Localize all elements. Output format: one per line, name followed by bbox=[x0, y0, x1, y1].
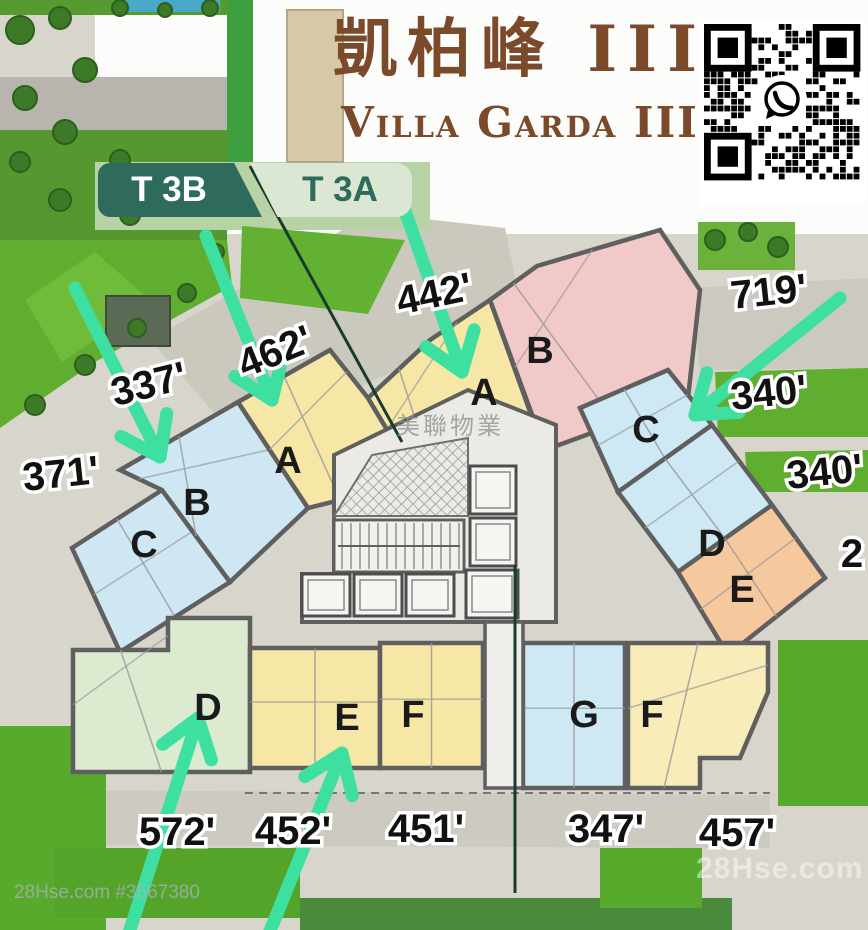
qr-module bbox=[833, 106, 839, 112]
qr-module bbox=[786, 146, 792, 152]
qr-module bbox=[826, 119, 832, 125]
qr-module bbox=[806, 106, 812, 112]
qr-module bbox=[752, 65, 758, 71]
qr-module bbox=[826, 99, 832, 105]
whatsapp-qr-code bbox=[700, 20, 866, 206]
watermark-agency: 美聯物業 bbox=[396, 406, 504, 441]
qr-module bbox=[704, 72, 710, 78]
tree bbox=[49, 189, 71, 211]
tree bbox=[49, 7, 71, 29]
qr-module bbox=[779, 133, 785, 139]
unit-label-c: C bbox=[130, 524, 157, 566]
qr-module bbox=[792, 160, 798, 166]
qr-module bbox=[854, 174, 860, 180]
qr-module bbox=[724, 106, 730, 112]
qr-module bbox=[779, 153, 785, 159]
qr-module bbox=[724, 126, 730, 132]
unit-label-e: E bbox=[729, 569, 754, 611]
qr-module bbox=[813, 106, 819, 112]
qr-module bbox=[772, 146, 778, 152]
qr-module bbox=[738, 78, 744, 84]
qr-module bbox=[738, 85, 744, 91]
qr-module bbox=[854, 140, 860, 146]
qr-module bbox=[765, 58, 771, 64]
unit-label-d: D bbox=[698, 523, 725, 565]
qr-module bbox=[799, 153, 805, 159]
qr-module bbox=[786, 133, 792, 139]
qr-module bbox=[745, 92, 751, 98]
floorplan-image: CBAABCDEDEFGF442'462'337'371'719'340'340… bbox=[0, 0, 868, 930]
qr-module bbox=[840, 78, 846, 84]
qr-module bbox=[820, 85, 826, 91]
qr-module bbox=[847, 174, 853, 180]
qr-module bbox=[847, 126, 853, 132]
qr-module bbox=[758, 58, 764, 64]
qr-module bbox=[792, 31, 798, 37]
qr-module bbox=[731, 72, 737, 78]
qr-module bbox=[786, 167, 792, 173]
qr-module bbox=[738, 99, 744, 105]
qr-module bbox=[813, 119, 819, 125]
tree bbox=[75, 355, 95, 375]
qr-module bbox=[826, 167, 832, 173]
qr-module bbox=[847, 153, 853, 159]
core-corridor bbox=[485, 622, 523, 788]
unit-label-c: C bbox=[632, 409, 659, 451]
qr-module bbox=[792, 65, 798, 71]
watermark-28hse: 28Hse.com bbox=[696, 852, 863, 886]
qr-module bbox=[854, 133, 860, 139]
qr-module bbox=[820, 72, 826, 78]
qr-module bbox=[718, 146, 738, 166]
qr-module bbox=[779, 58, 785, 64]
tower-badge-t3b: T 3B bbox=[98, 163, 262, 217]
unit-label-b: B bbox=[526, 330, 553, 372]
tree bbox=[202, 0, 218, 16]
qr-module bbox=[820, 133, 826, 139]
qr-module bbox=[758, 174, 764, 180]
qr-module bbox=[758, 140, 764, 146]
area-label-371: 371' bbox=[20, 448, 100, 500]
tree bbox=[128, 319, 146, 337]
qr-module bbox=[813, 160, 819, 166]
unit-label-f: F bbox=[640, 694, 663, 736]
qr-module bbox=[718, 126, 724, 132]
qr-module bbox=[847, 146, 853, 152]
qr-module bbox=[704, 85, 710, 91]
qr-module bbox=[765, 38, 771, 44]
qr-module bbox=[833, 126, 839, 132]
qr-module bbox=[806, 58, 812, 64]
qr-module bbox=[799, 146, 805, 152]
qr-module bbox=[813, 112, 819, 118]
qr-module bbox=[833, 119, 839, 125]
project-title-chinese: 凱柏峰 III bbox=[300, 12, 740, 89]
qr-module bbox=[704, 78, 710, 84]
qr-module bbox=[847, 92, 853, 98]
qr-module bbox=[765, 153, 771, 159]
qr-module bbox=[813, 153, 819, 159]
tree bbox=[53, 120, 77, 144]
qr-module bbox=[786, 65, 792, 71]
tree bbox=[112, 0, 128, 16]
qr-module bbox=[731, 126, 737, 132]
qr-module bbox=[799, 133, 805, 139]
qr-module bbox=[813, 140, 819, 146]
qr-module bbox=[731, 106, 737, 112]
qr-module bbox=[745, 106, 751, 112]
qr-module bbox=[840, 126, 846, 132]
qr-module bbox=[738, 106, 744, 112]
qr-module bbox=[758, 126, 764, 132]
qr-module bbox=[792, 153, 798, 159]
qr-module bbox=[806, 174, 812, 180]
qr-module bbox=[758, 44, 764, 50]
qr-module bbox=[704, 106, 710, 112]
qr-module bbox=[779, 51, 785, 57]
qr-module bbox=[799, 38, 805, 44]
qr-module bbox=[718, 85, 724, 91]
qr-module bbox=[826, 106, 832, 112]
qr-module bbox=[711, 99, 717, 105]
qr-module bbox=[711, 72, 717, 78]
qr-module bbox=[724, 92, 730, 98]
qr-module bbox=[820, 106, 826, 112]
unit-label-g: G bbox=[569, 694, 599, 736]
area-label-451: 451' bbox=[388, 807, 464, 851]
qr-module bbox=[704, 92, 710, 98]
area-label-340: 340' bbox=[784, 446, 864, 498]
qr-module bbox=[704, 119, 710, 125]
qr-module bbox=[718, 106, 724, 112]
qr-module bbox=[792, 126, 798, 132]
qr-module bbox=[779, 167, 785, 173]
qr-module bbox=[786, 51, 792, 57]
qr-module bbox=[826, 92, 832, 98]
tree bbox=[158, 3, 172, 17]
grass-area bbox=[600, 848, 702, 908]
qr-module bbox=[847, 99, 853, 105]
qr-module bbox=[718, 38, 738, 58]
qr-module bbox=[792, 167, 798, 173]
qr-pattern bbox=[700, 20, 866, 206]
qr-module bbox=[758, 133, 764, 139]
unit-label-a: A bbox=[274, 440, 301, 482]
qr-module bbox=[840, 140, 846, 146]
qr-module bbox=[718, 99, 724, 105]
qr-module bbox=[847, 140, 853, 146]
grass-area bbox=[227, 0, 253, 180]
qr-module bbox=[765, 72, 771, 78]
tower-badge-t3a: T 3A bbox=[250, 163, 412, 217]
grass-area bbox=[778, 640, 868, 806]
qr-module bbox=[854, 167, 860, 173]
qr-module bbox=[792, 146, 798, 152]
qr-module bbox=[833, 78, 839, 84]
qr-module bbox=[806, 140, 812, 146]
qr-module bbox=[765, 160, 771, 166]
qr-module bbox=[731, 92, 737, 98]
qr-module bbox=[820, 174, 826, 180]
qr-module bbox=[806, 31, 812, 37]
elevator-shaft bbox=[466, 570, 518, 618]
qr-module bbox=[840, 167, 846, 173]
area-label-457: 457' bbox=[699, 811, 775, 855]
qr-module bbox=[840, 174, 846, 180]
qr-module bbox=[813, 72, 819, 78]
qr-module bbox=[806, 160, 812, 166]
qr-module bbox=[833, 153, 839, 159]
qr-module bbox=[718, 92, 724, 98]
qr-module bbox=[779, 24, 785, 30]
qr-module bbox=[731, 112, 737, 118]
qr-module bbox=[806, 112, 812, 118]
qr-module bbox=[792, 44, 798, 50]
qr-module bbox=[813, 78, 819, 84]
area-label-572: 572' bbox=[139, 810, 215, 854]
tree bbox=[178, 284, 196, 302]
qr-module bbox=[820, 119, 826, 125]
qr-module bbox=[820, 146, 826, 152]
qr-module bbox=[711, 106, 717, 112]
area-label-719: 719' bbox=[728, 266, 808, 318]
qr-module bbox=[826, 38, 846, 58]
qr-module bbox=[799, 167, 805, 173]
watermark-listing-id: 28Hse.com #3567380 bbox=[14, 882, 200, 904]
qr-module bbox=[840, 160, 846, 166]
qr-module bbox=[786, 31, 792, 37]
area-label-340: 340' bbox=[728, 367, 808, 419]
tree bbox=[73, 58, 97, 82]
qr-module bbox=[772, 44, 778, 50]
qr-module bbox=[752, 38, 758, 44]
qr-module bbox=[806, 126, 812, 132]
qr-module bbox=[854, 126, 860, 132]
qr-module bbox=[745, 72, 751, 78]
qr-module bbox=[847, 119, 853, 125]
qr-module bbox=[833, 112, 839, 118]
qr-module bbox=[806, 78, 812, 84]
area-label-347: 347' bbox=[568, 807, 644, 851]
qr-module bbox=[847, 133, 853, 139]
elevator-shaft bbox=[470, 466, 516, 514]
qr-module bbox=[724, 78, 730, 84]
tree bbox=[13, 86, 37, 110]
qr-module bbox=[854, 72, 860, 78]
qr-module bbox=[731, 99, 737, 105]
qr-module bbox=[738, 112, 744, 118]
qr-module bbox=[711, 78, 717, 84]
qr-module bbox=[745, 78, 751, 84]
qr-module bbox=[799, 140, 805, 146]
qr-module bbox=[833, 133, 839, 139]
unit-label-d: D bbox=[194, 687, 221, 729]
qr-module bbox=[840, 119, 846, 125]
tree bbox=[10, 152, 30, 172]
qr-module bbox=[833, 146, 839, 152]
qr-module bbox=[779, 174, 785, 180]
qr-module bbox=[711, 126, 717, 132]
unit-label-f: F bbox=[401, 694, 424, 736]
qr-module bbox=[752, 140, 758, 146]
unit-label-b: B bbox=[183, 482, 210, 524]
tree bbox=[25, 395, 45, 415]
qr-module bbox=[806, 38, 812, 44]
qr-module bbox=[833, 174, 839, 180]
qr-module bbox=[711, 119, 717, 125]
qr-module bbox=[786, 160, 792, 166]
qr-module bbox=[772, 153, 778, 159]
area-label-2: 2 bbox=[841, 532, 863, 576]
qr-module bbox=[813, 92, 819, 98]
qr-module bbox=[820, 153, 826, 159]
tree bbox=[705, 230, 725, 250]
qr-module bbox=[854, 99, 860, 105]
elevator-shaft bbox=[470, 518, 516, 566]
qr-module bbox=[765, 126, 771, 132]
qr-module bbox=[752, 78, 758, 84]
tree bbox=[739, 223, 757, 241]
qr-module bbox=[718, 72, 724, 78]
qr-module bbox=[786, 38, 792, 44]
unit-label-e: E bbox=[334, 697, 359, 739]
qr-module bbox=[758, 65, 764, 71]
qr-module bbox=[833, 92, 839, 98]
tree bbox=[6, 16, 34, 44]
qr-module bbox=[792, 38, 798, 44]
qr-module bbox=[758, 38, 764, 44]
area-label-452: 452' bbox=[255, 809, 331, 853]
qr-module bbox=[833, 140, 839, 146]
qr-module bbox=[724, 119, 730, 125]
qr-module bbox=[813, 167, 819, 173]
qr-module bbox=[772, 167, 778, 173]
qr-module bbox=[826, 146, 832, 152]
qr-module bbox=[738, 72, 744, 78]
qr-module bbox=[718, 78, 724, 84]
project-title-english: Villa Garda III bbox=[300, 98, 740, 147]
qr-module bbox=[724, 85, 730, 91]
tree bbox=[768, 237, 788, 257]
qr-module bbox=[786, 24, 792, 30]
qr-module bbox=[806, 92, 812, 98]
